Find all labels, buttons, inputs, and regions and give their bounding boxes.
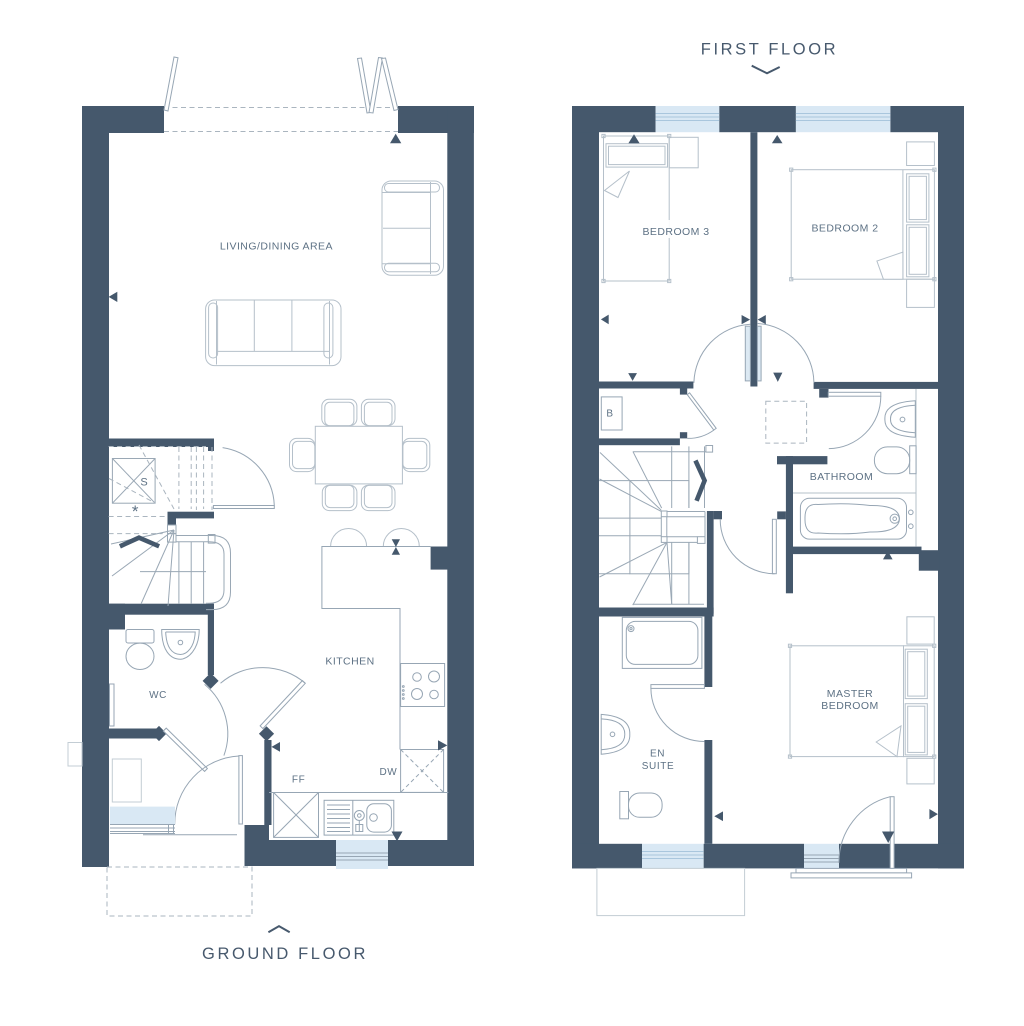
svg-text:B: B	[606, 409, 613, 420]
svg-text:DW: DW	[379, 767, 397, 778]
svg-text:MASTER: MASTER	[827, 688, 873, 700]
svg-text:WC: WC	[149, 690, 167, 701]
svg-text:FF: FF	[292, 774, 305, 785]
svg-text:KITCHEN: KITCHEN	[325, 655, 374, 667]
svg-text:BEDROOM 3: BEDROOM 3	[642, 226, 709, 238]
svg-text:*: *	[132, 502, 139, 521]
svg-text:S: S	[140, 476, 147, 488]
svg-text:LIVING/DINING AREA: LIVING/DINING AREA	[220, 241, 333, 253]
svg-text:SUITE: SUITE	[642, 761, 674, 772]
svg-text:FIRST FLOOR: FIRST FLOOR	[701, 40, 838, 58]
svg-text:BATHROOM: BATHROOM	[810, 471, 874, 483]
svg-text:BEDROOM 2: BEDROOM 2	[811, 222, 878, 234]
svg-text:EN: EN	[650, 749, 665, 760]
svg-text:GROUND FLOOR: GROUND FLOOR	[202, 945, 368, 963]
svg-text:BEDROOM: BEDROOM	[821, 700, 878, 712]
